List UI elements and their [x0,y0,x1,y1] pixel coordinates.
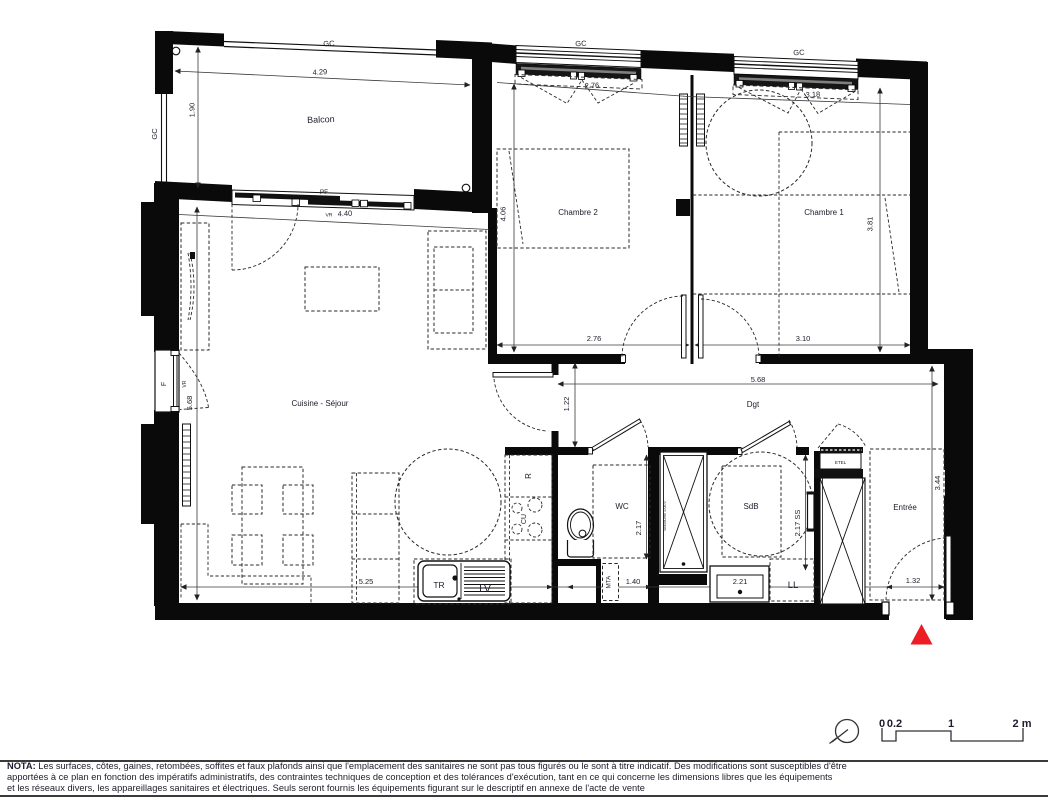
svg-text:0.2: 0.2 [887,718,902,730]
svg-text:5.68: 5.68 [185,396,194,411]
svg-text:5.25: 5.25 [359,577,374,586]
svg-text:Balcon: Balcon [307,114,335,125]
svg-text:BAIGNOIRE 170x70: BAIGNOIRE 170x70 [663,501,667,530]
svg-text:VR: VR [325,212,333,218]
svg-text:2.17: 2.17 [634,521,643,536]
svg-text:Chambre 2: Chambre 2 [558,208,598,217]
svg-text:2.21: 2.21 [733,577,748,586]
svg-text:F: F [161,382,168,386]
svg-text:VR: VR [182,380,188,387]
svg-text:NOTA: Les surfaces, côtes, ga: NOTA: Les surfaces, côtes, gaines, retom… [7,761,847,771]
svg-text:3.81: 3.81 [866,217,875,232]
svg-text:GC: GC [323,39,335,49]
svg-text:1: 1 [948,718,954,730]
svg-text:Dgt: Dgt [747,400,760,409]
svg-text:ETEL: ETEL [835,460,847,465]
svg-text:Chambre 1: Chambre 1 [804,208,844,217]
svg-text:Cuisine - Séjour: Cuisine - Séjour [292,399,349,408]
svg-text:0: 0 [879,718,885,730]
svg-text:4.06: 4.06 [499,207,508,222]
svg-text:1.22: 1.22 [562,397,571,412]
svg-text:1.40: 1.40 [626,577,641,586]
svg-text:LV: LV [479,584,491,595]
svg-text:2.76: 2.76 [587,334,602,343]
svg-text:3.18: 3.18 [805,90,820,100]
svg-text:PF: PF [320,189,329,196]
svg-text:4.40: 4.40 [337,209,352,219]
svg-text:GC: GC [793,48,805,58]
svg-text:Entrée: Entrée [893,503,917,512]
svg-text:3.10: 3.10 [796,334,811,343]
svg-text:1.32: 1.32 [906,576,921,585]
svg-text:2.17 SS: 2.17 SS [793,510,802,537]
svg-text:WC: WC [615,502,629,511]
svg-text:CU: CU [521,514,528,524]
svg-text:1.90: 1.90 [188,103,197,118]
svg-text:R: R [524,473,533,479]
svg-text:apportées à ce plan en fonctio: apportées à ce plan en fonction des impé… [7,772,833,782]
svg-text:5.68: 5.68 [751,375,766,384]
svg-text:MTA: MTA [606,575,613,588]
svg-text:4.29: 4.29 [312,67,327,77]
svg-text:GC: GC [150,128,159,140]
svg-text:et les réseaux divers, les app: et les réseaux divers, les appareillages… [7,783,645,793]
svg-text:LL: LL [788,580,799,591]
svg-text:2 m: 2 m [1013,718,1032,730]
svg-text:SdB: SdB [743,502,758,511]
svg-text:3.44: 3.44 [933,476,942,491]
svg-text:2.76: 2.76 [584,81,599,91]
svg-text:TR: TR [433,580,444,590]
svg-text:GC: GC [575,39,587,49]
